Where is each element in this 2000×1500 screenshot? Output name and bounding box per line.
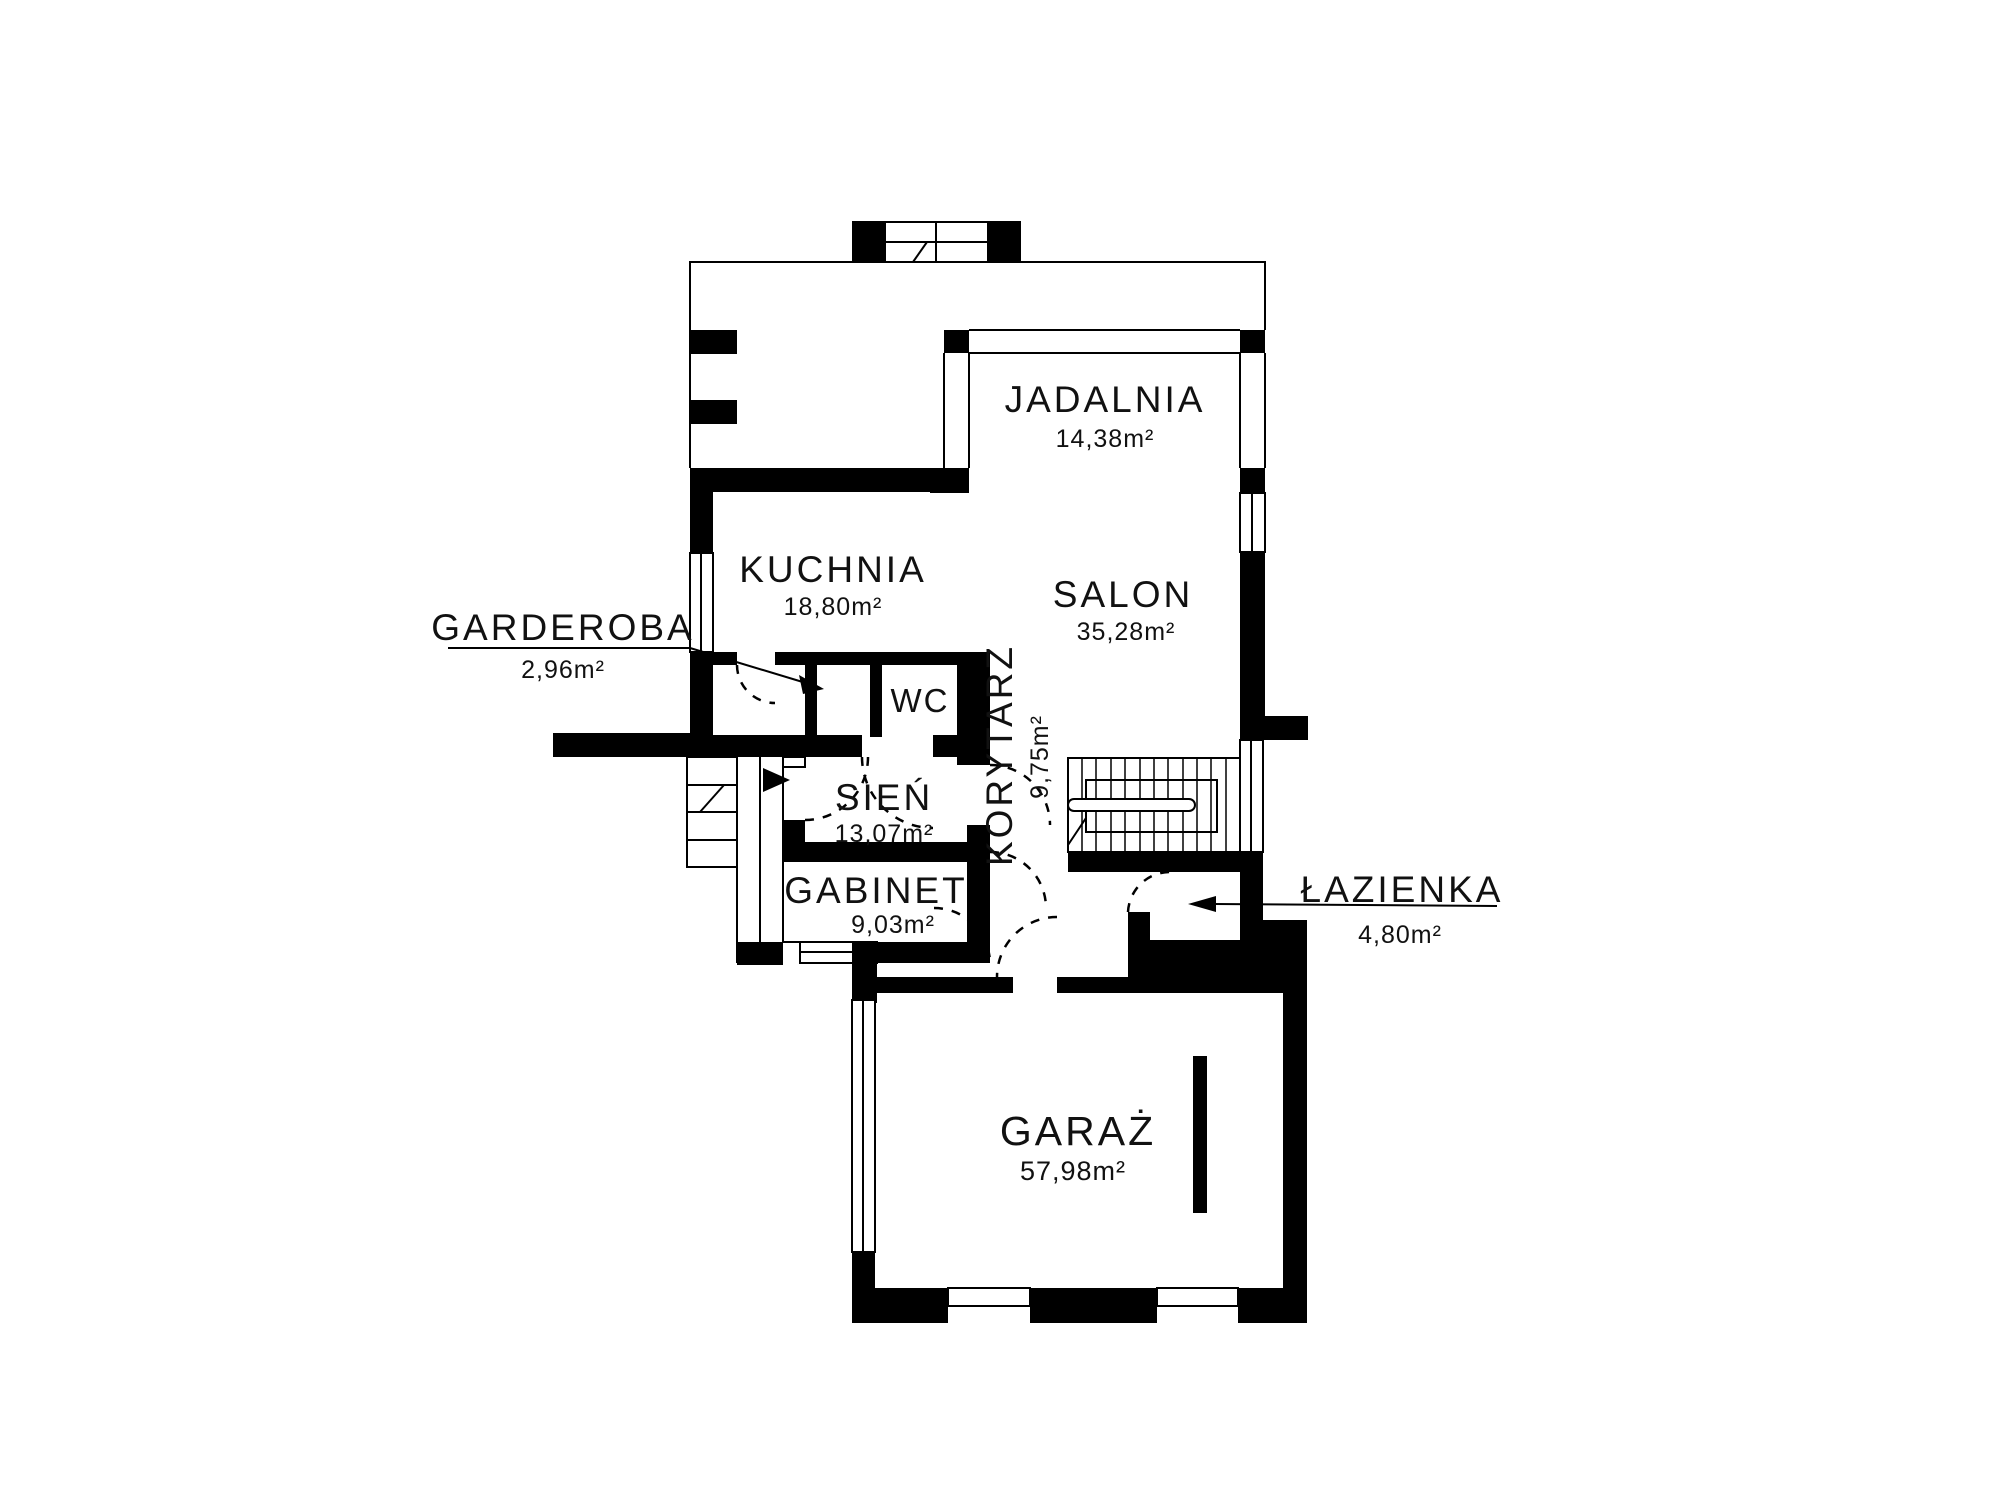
garage-interior-wall	[1193, 1056, 1207, 1213]
room-area-korytarz: 9,75m²	[1026, 715, 1054, 799]
room-area-garaz: 57,98m²	[1020, 1156, 1126, 1186]
terrace-wall-stubs	[690, 330, 737, 424]
room-area-gabinet: 9,03m²	[851, 911, 935, 939]
entrance-arrow-icon	[763, 768, 790, 792]
floor-plan-page: JADALNIA 14,38m² KUCHNIA 18,80m² SALON 3…	[0, 0, 2000, 1500]
room-area-kuchnia: 18,80m²	[784, 593, 883, 621]
bathroom-door-arc	[1128, 872, 1170, 912]
room-label-korytarz: KORYTARZ	[979, 644, 1020, 866]
room-label-sien: SIEŃ	[835, 777, 933, 818]
stair-handrail	[1068, 799, 1195, 811]
room-label-gabinet: GABINET	[784, 870, 967, 911]
room-area-jadalnia: 14,38m²	[1056, 425, 1155, 453]
room-labels: JADALNIA 14,38m² KUCHNIA 18,80m² SALON 3…	[431, 379, 1503, 1186]
garderoba-door-arc	[737, 665, 775, 703]
stair-break-line	[1068, 818, 1086, 845]
room-area-garderoba: 2,96m²	[521, 656, 605, 684]
room-label-salon: SALON	[1053, 574, 1193, 615]
lazienka-arrow-icon	[1188, 896, 1216, 912]
garage-door-arc	[997, 917, 1057, 977]
room-label-kuchnia: KUCHNIA	[739, 549, 927, 590]
floor-plan-canvas: JADALNIA 14,38m² KUCHNIA 18,80m² SALON 3…	[0, 0, 2000, 1500]
room-area-lazienka: 4,80m²	[1358, 921, 1442, 949]
room-label-garderoba: GARDEROBA	[431, 607, 694, 648]
room-label-lazienka: ŁAZIENKA	[1301, 869, 1504, 910]
terrace-outline	[690, 262, 1265, 468]
room-area-salon: 35,28m²	[1077, 618, 1176, 646]
garderoba-callout	[448, 648, 824, 694]
room-area-sien: 13,07m²	[835, 820, 934, 848]
room-label-garaz: GARAŻ	[1000, 1108, 1156, 1154]
chimney	[853, 222, 1020, 262]
room-label-jadalnia: JADALNIA	[1005, 379, 1206, 420]
staircase	[1068, 758, 1240, 872]
room-label-wc: WC	[891, 682, 950, 719]
